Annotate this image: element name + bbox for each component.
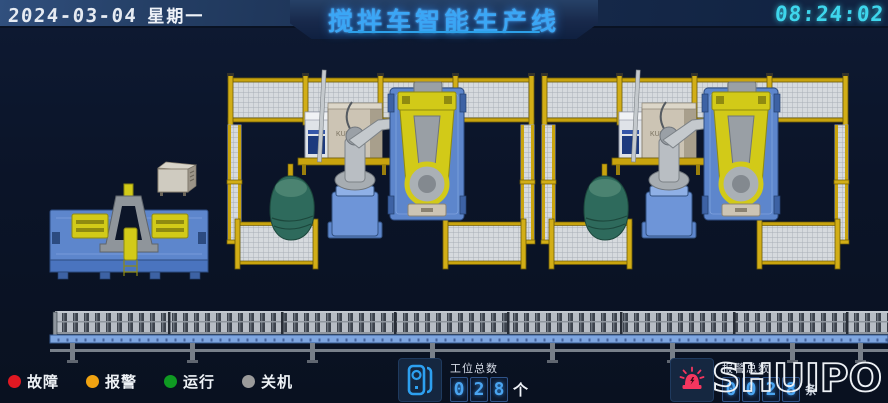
legend-item-off: 关机	[242, 371, 293, 392]
station-counter: 工位总数 0 2 8 个	[398, 358, 528, 402]
hmi-screen: KUKA	[0, 0, 888, 403]
station-counter-label: 工位总数	[450, 360, 528, 376]
running-dot-icon	[164, 375, 177, 388]
roller-conveyor	[50, 311, 888, 363]
station-digit: 8	[490, 377, 508, 402]
robot-cell-1	[227, 70, 535, 269]
station-device-icon	[407, 364, 433, 396]
robot-cell-2	[541, 70, 849, 269]
shuipo-logo: SHUIPO	[708, 358, 886, 400]
legend-item-alarm: 报警	[86, 371, 137, 392]
station-digit: 2	[470, 377, 488, 402]
station-counter-tile	[398, 358, 442, 402]
fault-dot-icon	[8, 375, 21, 388]
legend-item-fault: 故障	[8, 371, 59, 392]
alarm-beacon-icon	[678, 366, 706, 394]
shuipo-logo-text: SHUIPO	[712, 358, 882, 400]
legend-item-running: 运行	[164, 371, 215, 392]
off-dot-icon	[242, 375, 255, 388]
scene-canvas: KUKA	[0, 0, 888, 403]
weekday-text: 星期一	[147, 2, 204, 27]
date-text: 2024-03-04	[7, 5, 138, 27]
title-underline	[348, 31, 540, 33]
date-display: 2024-03-04 星期一	[8, 2, 204, 27]
fixture-station	[50, 162, 208, 279]
clock-display: 08:24:02	[774, 2, 885, 26]
station-digit: 0	[450, 377, 468, 402]
alarm-dot-icon	[86, 375, 99, 388]
station-unit: 个	[513, 379, 528, 400]
status-legend: 故障 报警 运行 关机	[8, 371, 293, 392]
